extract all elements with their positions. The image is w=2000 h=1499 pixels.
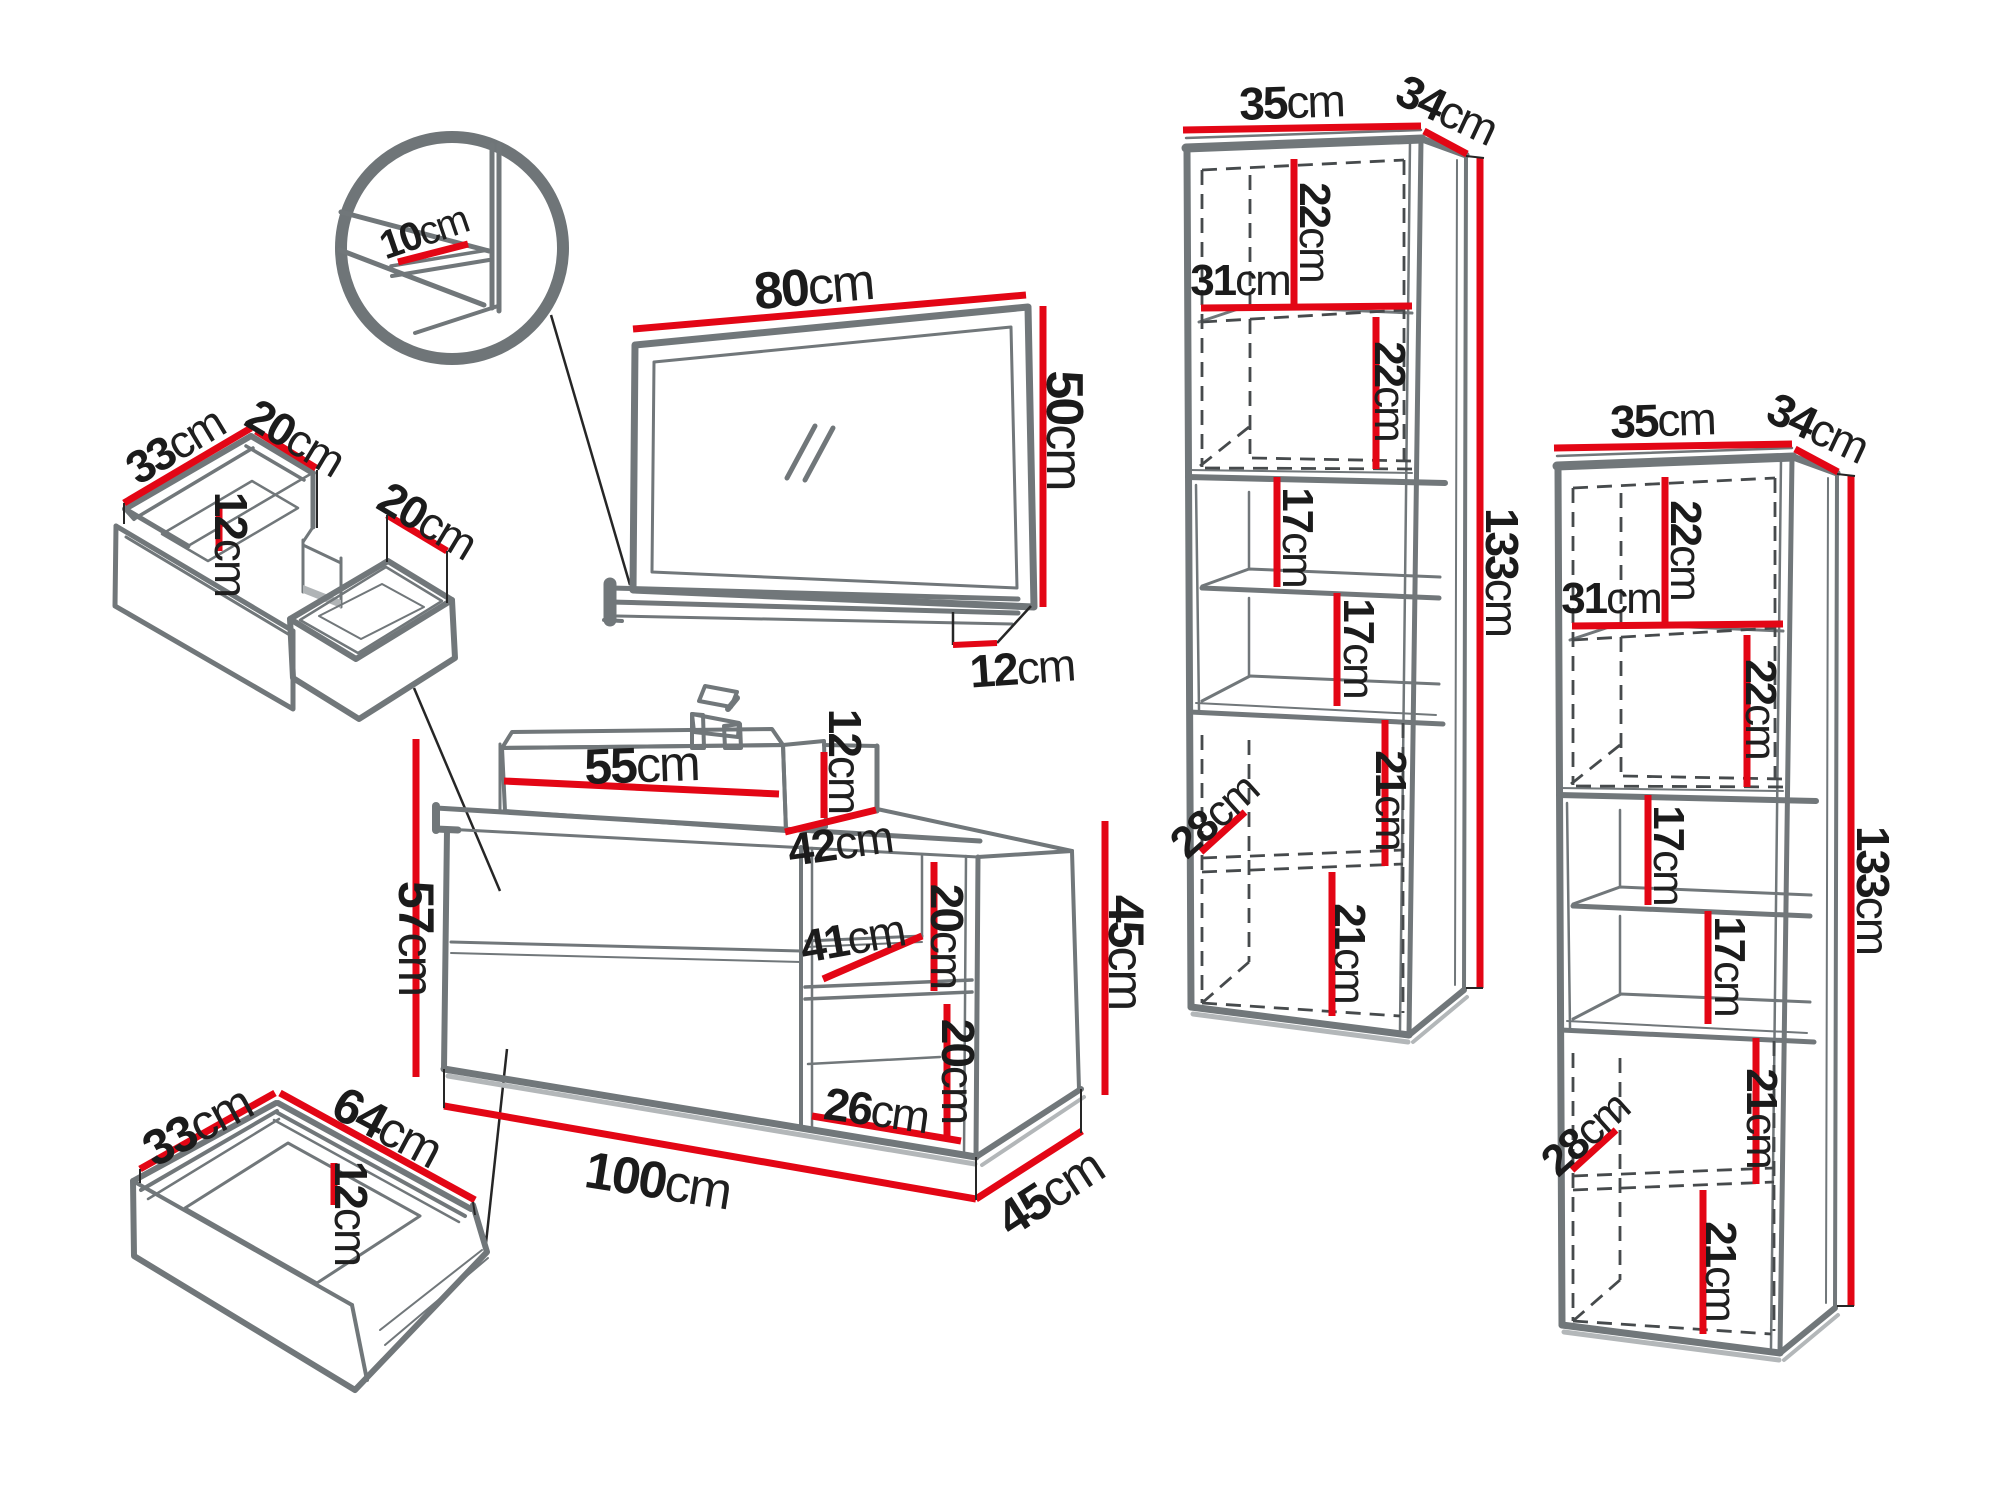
svg-text:55cm: 55cm: [583, 735, 699, 795]
svg-text:21cm: 21cm: [1366, 750, 1415, 850]
svg-text:50cm: 50cm: [1035, 370, 1093, 489]
svg-text:12cm: 12cm: [325, 1161, 377, 1266]
svg-text:20cm: 20cm: [932, 1019, 984, 1124]
svg-text:22cm: 22cm: [1365, 341, 1414, 441]
svg-text:133cm: 133cm: [1476, 508, 1528, 636]
svg-text:21cm: 21cm: [1325, 903, 1374, 1003]
svg-text:12cm: 12cm: [968, 638, 1076, 697]
svg-text:12cm: 12cm: [205, 492, 257, 597]
svg-text:12cm: 12cm: [819, 709, 871, 814]
svg-text:17cm: 17cm: [1334, 598, 1383, 698]
svg-text:17cm: 17cm: [1273, 487, 1322, 587]
svg-text:57cm: 57cm: [388, 881, 444, 995]
svg-text:35cm: 35cm: [1238, 74, 1344, 130]
svg-text:20cm: 20cm: [921, 884, 973, 989]
svg-text:22cm: 22cm: [1290, 182, 1339, 282]
svg-text:31cm: 31cm: [1190, 256, 1290, 305]
svg-text:45cm: 45cm: [1098, 895, 1154, 1009]
svg-text:80cm: 80cm: [752, 253, 876, 321]
